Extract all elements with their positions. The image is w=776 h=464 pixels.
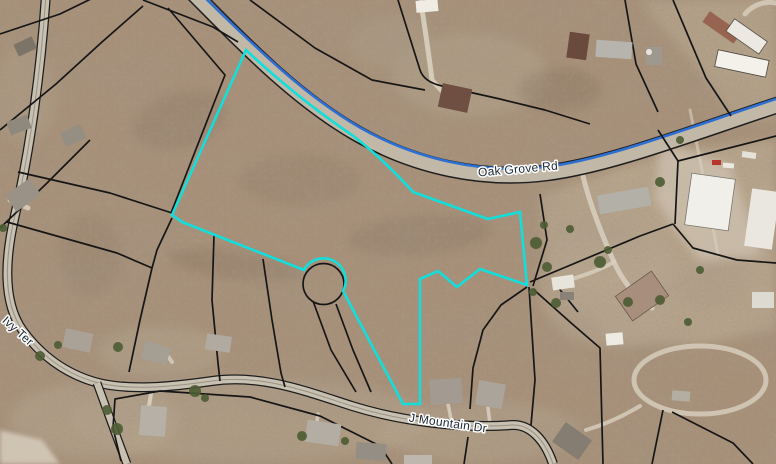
building [595, 40, 632, 59]
terrain-layer [0, 0, 776, 464]
building [560, 292, 574, 300]
silo [646, 49, 652, 55]
building [305, 420, 342, 447]
building [685, 173, 736, 231]
vehicle [712, 160, 721, 165]
building [672, 390, 691, 402]
building [429, 378, 463, 405]
building [475, 380, 506, 409]
building [416, 0, 439, 13]
building [139, 405, 167, 437]
map-canvas[interactable]: Oak Grove Rd J Mountain Dr Ivy Ter [0, 0, 776, 464]
map-viewport[interactable]: Oak Grove Rd J Mountain Dr Ivy Ter [0, 0, 776, 464]
building [404, 455, 432, 464]
vehicle [723, 163, 734, 169]
building [752, 292, 774, 308]
building [355, 442, 386, 461]
building [606, 332, 624, 345]
building [566, 32, 589, 61]
